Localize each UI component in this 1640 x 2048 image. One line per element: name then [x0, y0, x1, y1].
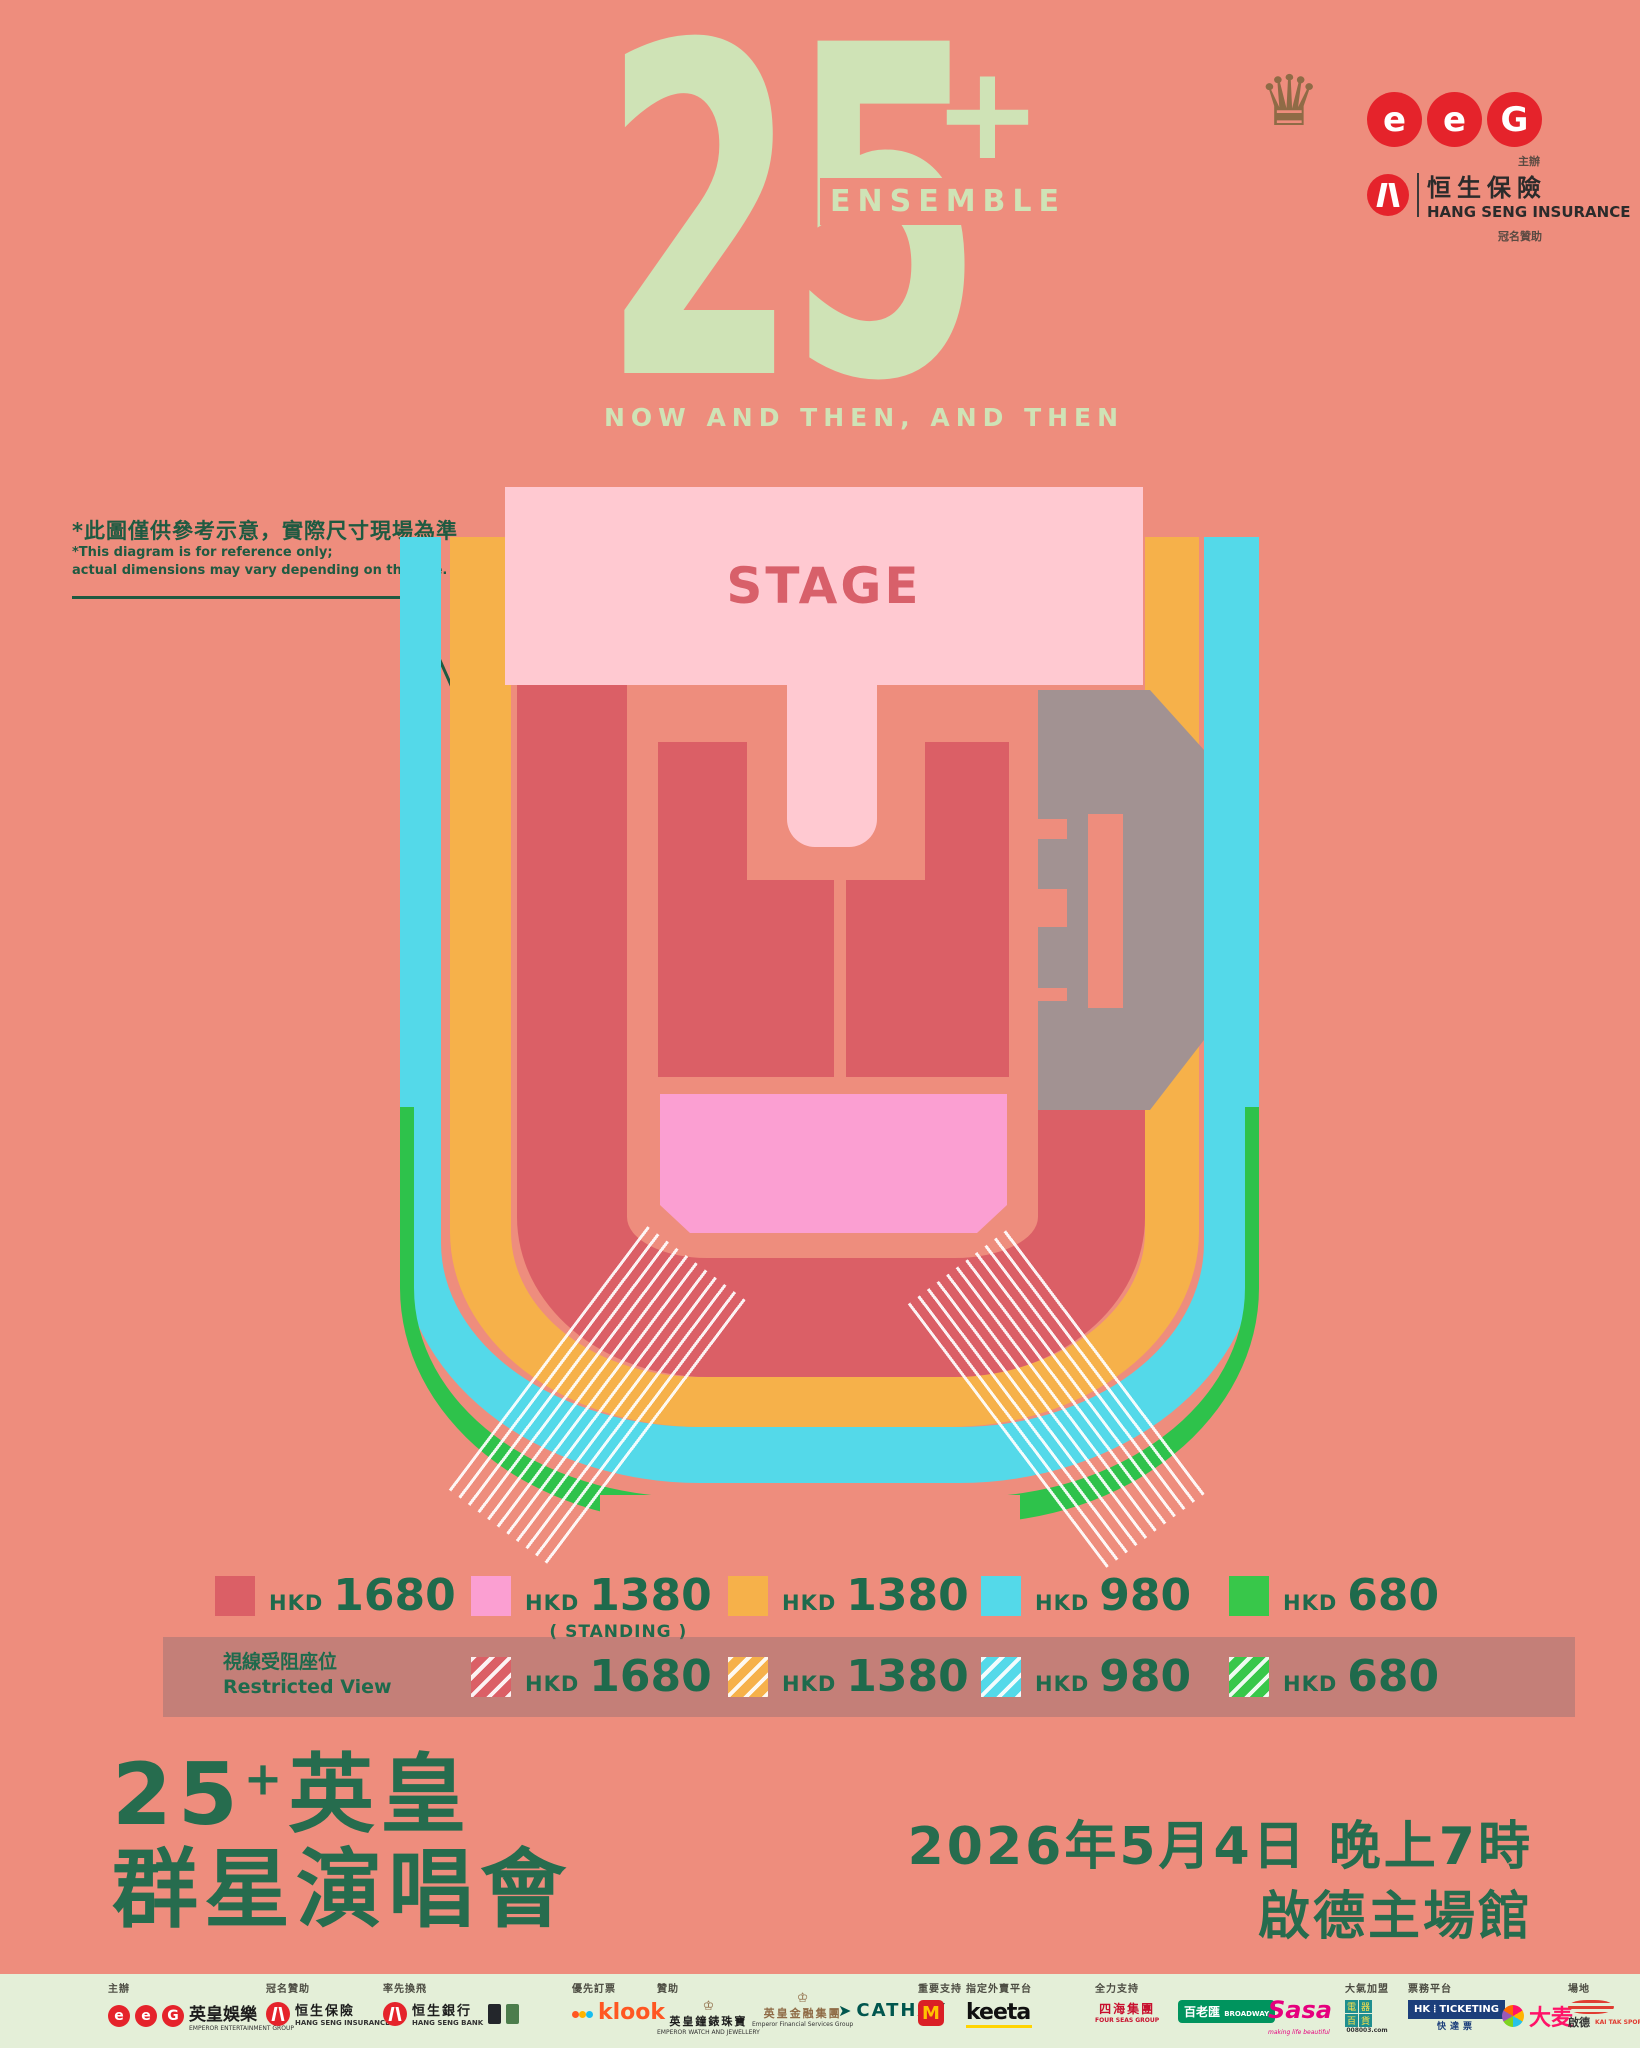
legend-item-1380: HKD 1380 [728, 1576, 969, 1616]
hang-seng-icon [266, 2002, 290, 2026]
klook-logo: klook [572, 2000, 665, 2025]
footer-group-mcdonalds: 重要支持 M [918, 1980, 962, 2026]
legend-item-980: HKD 980 [981, 1576, 1191, 1616]
bank-card-green [506, 2004, 519, 2024]
legend-item-r980: HKD 980 [981, 1657, 1191, 1697]
price: 1680 [333, 1576, 455, 1616]
footer-group-klook: 優先訂票 klook [572, 1980, 665, 2025]
mcdonalds-logo: M [918, 2000, 944, 2026]
price: 1380 [846, 1657, 968, 1697]
legend-item-r1380: HKD 1380 [728, 1657, 969, 1697]
legend-item-1380-standing: HKD 1380 ( STANDING ) [471, 1576, 712, 1642]
footer-priority-label: 優先訂票 [572, 1980, 665, 1995]
crown-icon: ♔ [657, 2000, 760, 2013]
footer-sponsor-label: 贊助 [657, 1980, 760, 1995]
swatch-orange-hatched [728, 1657, 768, 1697]
hsi-zh: 恒生保險 [295, 2000, 390, 2019]
hsi-en: HANG SENG INSURANCE [1427, 203, 1630, 221]
legend-item-1680: HKD 1680 [215, 1576, 456, 1616]
stage: STAGE [505, 487, 1143, 685]
hang-seng-bank-logo: 恒生銀行 HANG SENG BANK [383, 2000, 519, 2027]
price: 1380 [846, 1576, 968, 1616]
legend-item-r680: HKD 680 [1229, 1657, 1439, 1697]
footer-group-watch: 贊助 ♔ 英皇鐘錶珠寶 EMPEROR WATCH AND JEWELLERY [657, 1980, 760, 2036]
fourseas-en: FOUR SEAS GROUP [1095, 2017, 1159, 2024]
broadway-logo: 百老匯 BROADWAY [1178, 2000, 1275, 2023]
footer-group-damai: 大麦 [1502, 2000, 1573, 2032]
swatch-green-hatched [1229, 1657, 1269, 1697]
broadway-zh: 百老匯 [1184, 2005, 1220, 2019]
broadway-en: BROADWAY [1224, 2010, 1269, 2018]
footer-title-sponsor-label: 冠名贊助 [266, 1980, 390, 1995]
appliance-grid-logo: 電 器 百 貨 [1345, 2000, 1389, 2027]
hk-ticketing-logo: HK ⦙ TICKETING [1408, 2000, 1505, 2019]
footer-group-hkticketing: 票務平台 HK ⦙ TICKETING 快達票 [1408, 1980, 1505, 2032]
event-title: 25+英皇 群星演唱會 [112, 1748, 572, 1937]
footer-group-broadway: 百老匯 BROADWAY [1178, 2000, 1275, 2023]
eeg-logo: e e G [1367, 92, 1542, 147]
hkd-label: HKD [1283, 1672, 1337, 1696]
restricted-view-en: Restricted View [223, 1675, 392, 1700]
keeta-wordmark: keeta [966, 2000, 1032, 2028]
bank-card-dark [488, 2004, 501, 2024]
footer-delivery-label: 指定外賣平台 [966, 1980, 1032, 1995]
swatch-pink [471, 1576, 511, 1616]
footer-full-support-label: 全力支持 [1095, 1980, 1159, 1995]
price: 680 [1347, 1657, 1439, 1697]
watch-en: EMPEROR WATCH AND JEWELLERY [657, 2029, 760, 2036]
title-sponsor-label-top: 冠名贊助 [1498, 228, 1542, 244]
klook-wordmark: klook [598, 2000, 665, 2025]
eeg-circle-3: G [1487, 92, 1542, 147]
hkd-label: HKD [1035, 1672, 1089, 1696]
eeg-circle-1: e [1367, 92, 1422, 147]
hkd-label: HKD [525, 1591, 579, 1615]
event-title-zh2: 群星演唱會 [112, 1843, 572, 1938]
swatch-red [215, 1576, 255, 1616]
eeg-circle-2: e [1427, 92, 1482, 147]
organizer-label-top: 主辦 [1518, 153, 1540, 169]
event-venue: 啟德主場館 [908, 1882, 1533, 1952]
finance-en: Emperor Financial Services Group [752, 2021, 853, 2028]
kaitak-zh: 啟德 [1568, 2014, 1590, 2030]
eeg-icon: G [162, 2005, 184, 2027]
damai-wordmark: 大麦 [1529, 2000, 1573, 2032]
price: 680 [1347, 1576, 1439, 1616]
hsb-en: HANG SENG BANK [412, 2019, 483, 2027]
price: 980 [1099, 1657, 1191, 1697]
hkd-label: HKD [269, 1591, 323, 1615]
green-ring-gap [600, 1495, 1020, 1529]
hkd-label: HKD [782, 1591, 836, 1615]
footer-support-label: 重要支持 [918, 1980, 962, 1995]
eeg-icon: e [108, 2005, 130, 2027]
restricted-view-zh: 視線受阻座位 [223, 1650, 392, 1675]
footer-group-title-sponsor: 冠名贊助 恒生保險 HANG SENG INSURANCE [266, 1980, 390, 2027]
logo-subtitle: NOW AND THEN, AND THEN [604, 403, 1124, 432]
logo-ensemble: ENSEMBLE [820, 178, 1076, 225]
swatch-cyan-hatched [981, 1657, 1021, 1697]
footer-group-fourseas: 全力支持 四海集團 FOUR SEAS GROUP [1095, 1980, 1159, 2024]
poster-page: 25 + ENSEMBLE NOW AND THEN, AND THEN ♛ e… [0, 0, 1640, 2048]
hkd-label: HKD [525, 1672, 579, 1696]
event-datetime-block: 2026年5月4日 晚上7時 啟德主場館 [908, 1812, 1533, 1952]
crown-icon: ♛ [1258, 66, 1321, 136]
event-title-zh1: 英皇 [288, 1745, 472, 1845]
hang-seng-icon [383, 2002, 407, 2026]
swatch-cyan [981, 1576, 1021, 1616]
event-title-25: 25 [112, 1745, 244, 1845]
tower-cutout-bar [1088, 814, 1123, 1008]
hang-seng-insurance-logo: 恒生保險 HANG SENG INSURANCE [1367, 168, 1630, 221]
klook-dots-icon [572, 2003, 593, 2022]
kaitak-en: KAI TAK SPORTS PARK [1595, 2019, 1640, 2026]
swatch-green [1229, 1576, 1269, 1616]
hkd-label: HKD [1035, 1591, 1089, 1615]
stage-runway [787, 685, 877, 847]
event-datetime: 2026年5月4日 晚上7時 [908, 1812, 1533, 1882]
swatch-red-hatched [471, 1657, 511, 1697]
hkd-label: HKD [1283, 1591, 1337, 1615]
footer-group-sasa: Sasa making life beautiful [1268, 1996, 1332, 2036]
hsb-zh: 恒生銀行 [412, 2000, 483, 2019]
tower-notch-3 [1038, 988, 1067, 1001]
footer-group-bank: 率先換飛 恒生銀行 HANG SENG BANK [383, 1980, 519, 2027]
appliance-url: 008003.com [1345, 2027, 1389, 2034]
footer-group-appliance: 大氣加盟 電 器 百 貨 008003.com [1345, 1980, 1389, 2034]
event-title-plus: + [244, 1751, 289, 1805]
damai-pinwheel-icon [1502, 2005, 1524, 2027]
price: 1680 [589, 1657, 711, 1697]
price: 1380 [589, 1576, 711, 1616]
sasa-wordmark: Sasa [1268, 1996, 1332, 2024]
footer-ticketing-label: 票務平台 [1408, 1980, 1505, 1995]
footer-joining-label: 大氣加盟 [1345, 1980, 1389, 1995]
legend-item-680: HKD 680 [1229, 1576, 1439, 1616]
logo-plus-icon: + [933, 48, 1042, 178]
restricted-view-label: 視線受阻座位 Restricted View [223, 1650, 392, 1699]
price: 980 [1099, 1576, 1191, 1616]
hang-seng-insurance-footer-logo: 恒生保險 HANG SENG INSURANCE [266, 2000, 390, 2027]
footer-group-keeta: 指定外賣平台 keeta [966, 1980, 1032, 2028]
fourseas-zh: 四海集團 [1095, 2000, 1159, 2017]
footer-group-kaitak: 場地 啟德 KAI TAK SPORTS PARK [1568, 1980, 1640, 2030]
legend-item-r1680: HKD 1680 [471, 1657, 712, 1697]
footer-bank-label: 率先換飛 [383, 1980, 519, 1995]
hsi-en: HANG SENG INSURANCE [295, 2019, 390, 2027]
hk-ticketing-zh: 快達票 [1408, 2019, 1505, 2032]
eeg-icon: e [135, 2005, 157, 2027]
swatch-orange [728, 1576, 768, 1616]
tower-notch-1 [1038, 819, 1067, 839]
stage-label: STAGE [726, 557, 921, 615]
watch-zh: 英皇鐘錶珠寶 [657, 2013, 760, 2029]
kai-tak-waves-icon [1568, 2000, 1614, 2014]
tower-notch-2 [1038, 889, 1067, 927]
hkd-label: HKD [782, 1672, 836, 1696]
standing-area-1380 [660, 1094, 1007, 1233]
seat-map: STAGE [300, 487, 1270, 1562]
hang-seng-icon [1367, 174, 1409, 216]
hsi-zh: 恒生保險 [1427, 168, 1630, 203]
sasa-tagline: making life beautiful [1268, 2029, 1332, 2036]
footer-venue-label: 場地 [1568, 1980, 1640, 1995]
cathay-brushwing-icon: ➤ [838, 2001, 851, 2020]
divider [1417, 173, 1419, 217]
